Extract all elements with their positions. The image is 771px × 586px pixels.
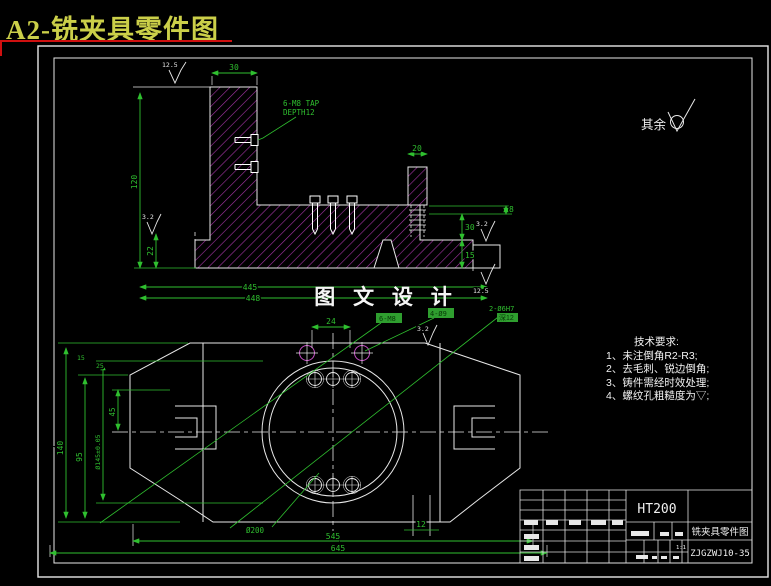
- dim-overall-b: 448: [246, 294, 261, 303]
- surf-detail-top-value: 3.2: [476, 220, 488, 228]
- dim-step-height: 22: [146, 246, 155, 256]
- tap-note-line2: DEPTH12: [283, 108, 315, 117]
- titleblock-cell-text-blob: [524, 520, 683, 561]
- dim-circle-dia: Ø200: [246, 526, 265, 535]
- tech-requirement-item: 3、铸件需经时效处理;: [606, 377, 756, 391]
- watermark-text: 图 文 设 计: [314, 285, 458, 309]
- left-clamp-slot: [175, 406, 216, 449]
- tech-requirement-item: 2、去毛刺、锐边倒角;: [606, 363, 756, 377]
- surf-left-value: 3.2: [142, 213, 154, 221]
- dim-right-b: 30: [465, 223, 475, 232]
- cad-screenshot: A2-铣夹具零件图: [0, 0, 771, 586]
- plan-view: [50, 330, 552, 557]
- titleblock-material: HT200: [637, 502, 676, 517]
- inner-frame: [54, 58, 752, 563]
- cad-drawing-canvas: 30 120 22 20 8 30 15 445 448 6-M8 TAP DE…: [0, 0, 771, 586]
- titleblock-drawing-title: 铣夹具零件图: [691, 526, 748, 538]
- dim-right-a: 8: [509, 205, 514, 214]
- dim-top-width: 30: [229, 63, 239, 72]
- threaded-boss-hatched: [408, 167, 427, 205]
- label-through-holes: 4-Ø9: [430, 310, 447, 318]
- right-clamp-slot: [454, 406, 495, 449]
- label-dowel-line1: 2-Ø6H7: [489, 305, 514, 313]
- tap-note-line1: 6-M8 TAP: [283, 99, 320, 108]
- label-tap-holes: 6-M8: [379, 315, 396, 323]
- surface-default-symbol: [668, 99, 695, 131]
- plan-surf-value: 3.2: [417, 325, 429, 333]
- tech-requirement-item: 1、未注倒角R2-R3;: [606, 350, 756, 364]
- surf-top-value: 12.5: [162, 61, 178, 69]
- surface-default-label: 其余: [641, 117, 667, 132]
- dim-overall-length: 645: [331, 544, 346, 553]
- tech-requirements-title: 技术要求:: [606, 336, 756, 350]
- dim-half-height: 45: [108, 407, 117, 416]
- dim-small-b: 25: [96, 362, 104, 370]
- detail-block: [473, 245, 500, 268]
- titleblock-scale: 1:1: [676, 545, 686, 551]
- dim-small-a: 15: [77, 354, 85, 362]
- tech-requirement-item: 4、螺纹孔粗糙度为▽;: [606, 390, 756, 404]
- dim-right-c: 15: [465, 251, 475, 260]
- dim-overall-a: 445: [243, 283, 258, 292]
- dim-slot-width: 12: [416, 520, 426, 529]
- dim-inner-length: 545: [326, 532, 341, 541]
- surf-detail-bottom-value: 12.5: [473, 287, 489, 295]
- tech-requirements: 技术要求: 1、未注倒角R2-R3; 2、去毛刺、锐边倒角; 3、铸件需经时效处…: [606, 336, 756, 404]
- section-body-hatched: [195, 87, 473, 268]
- label-dowel-line2: 深12: [499, 313, 514, 322]
- dim-inner-height: 95: [75, 452, 84, 462]
- dim-boss-width: 20: [412, 144, 422, 153]
- dim-boss-dia: Ø145±0.05: [94, 434, 102, 469]
- dim-left-height: 120: [130, 175, 139, 190]
- titleblock-drawing-no: ZJGZWJ10-35: [690, 549, 750, 559]
- section-view: [133, 87, 500, 271]
- dim-hole-pitch: 24: [326, 317, 336, 326]
- dim-total-height: 140: [56, 441, 65, 456]
